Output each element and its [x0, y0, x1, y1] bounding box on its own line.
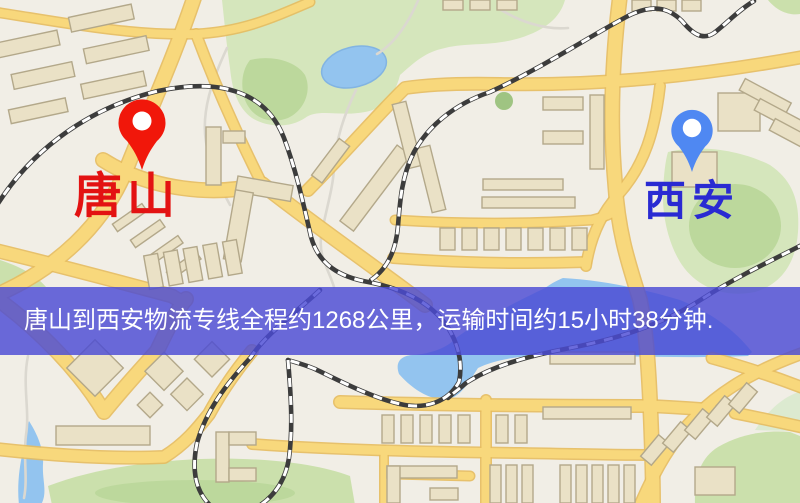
route-info-text: 唐山到西安物流专线全程约1268公里，运输时间约15小时38分钟.	[24, 307, 713, 334]
destination-pin-hole	[683, 119, 701, 137]
origin-pin-hole	[133, 112, 152, 131]
map-viewport[interactable]: 唐山 西安 唐山到西安物流专线全程约1268公里，运输时间约15小时38分钟.	[0, 0, 800, 503]
origin-city-label: 唐山	[74, 173, 180, 221]
destination-city-label: 西安	[644, 180, 740, 222]
route-info-banner: 唐山到西安物流专线全程约1268公里，运输时间约15小时38分钟.	[0, 287, 800, 355]
map-canvas[interactable]	[0, 0, 800, 503]
